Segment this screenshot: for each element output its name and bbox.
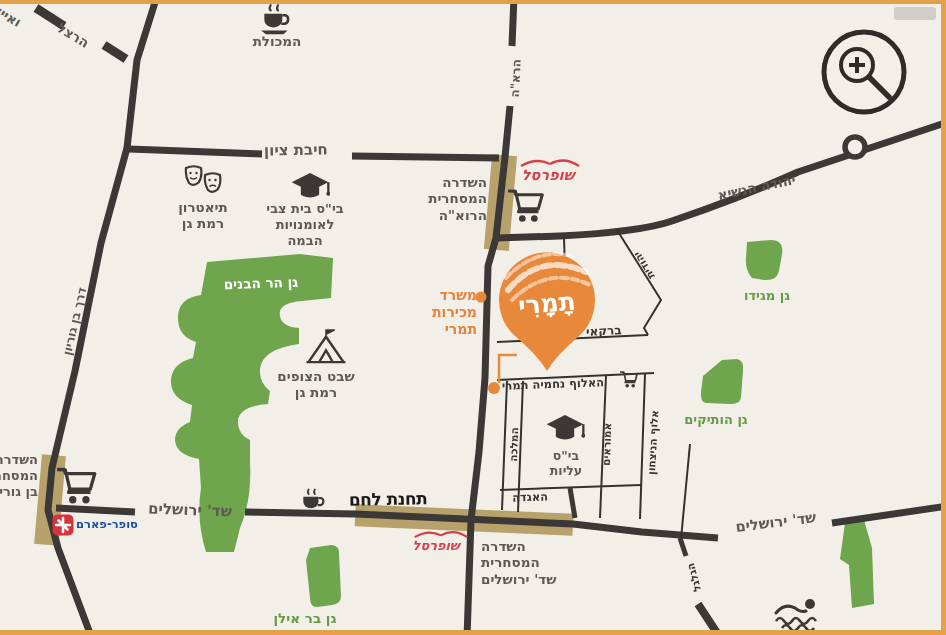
corner-watermark [894,7,936,20]
street-label-haroe: הרא"ה [508,56,525,101]
cart-icon [620,369,640,390]
theater-masks-icon [184,164,224,201]
zoom-in-icon[interactable] [817,25,911,119]
poi-label-sales-office: משרד מכירות תמרי [399,287,477,338]
super-pharm-label: סופר-פארם [75,517,139,531]
poi-label-scouts: שבט הצופים רמת גן [274,368,358,401]
street-hagalgal-upper [681,444,690,539]
road-ben-gurion [48,0,157,635]
poi-label-gan-bar-ilan: גן בר אילן [270,610,340,626]
street-label-hibat-zion: חיבת ציון [264,140,328,159]
street-label-haagada: האגדה [512,489,549,504]
tahanat-lehem-logo: תחנת לחם [336,488,440,511]
graduation-cap-icon [545,413,585,447]
road-hagalgal-stub [680,538,686,556]
shufersal-logo-bottom: שופרסל [402,529,470,552]
shufersal-logo-bottom-text: שופרסל [402,539,470,552]
park-gan-havatikim [701,359,743,404]
poi-label-beit-zvi: בי"ס בית צבי לאומנויות הבמה [260,201,350,249]
park-gan-megido [746,240,782,280]
road-herzl-dash-2 [104,45,126,59]
poi-label-school-aliyot: בי"ס עליות [534,448,598,479]
poi-label-theater: תיאטרון רמת גן [160,199,246,232]
sales-office-dot [476,292,487,303]
swimmer-icon [772,596,832,632]
coffee-cup-icon [298,487,330,517]
poi-label-promenade-jerusalem: השדרה המסחרית שד' ירושלים [481,538,573,587]
park-east-strip [840,520,874,608]
zoom-in-button[interactable] [817,25,911,119]
cart-icon [508,185,548,227]
street-label-hamalka: המלכה [507,423,521,465]
tamari-location-map: ואיילון הרצל חיבת ציון הרא"ה יהודה הנשיא… [0,0,946,635]
shufersal-logo-top-text: שופרסל [515,168,581,183]
poi-label-promenade-ben-gurion: השדרה המסחרית בן גוריון [0,452,38,500]
park-gan-bar-ilan [306,545,341,607]
street-label-amoraim: אמוראים [600,418,615,470]
poi-label-promenade-haroe: השדרה המסחרית הרוא"ה [407,174,487,223]
poi-label-gan-havatikim: גן הותיקים [672,412,760,428]
cart-icon [57,464,101,508]
coffee-cup-icon [258,3,296,37]
roundabout-icon [845,137,865,157]
street-label-barkai: ברקאי [586,323,622,339]
tent-icon [304,327,348,366]
street-label-jerusalem-left: שד' ירושלים [141,499,240,521]
shufersal-logo-top: שופרסל [515,157,581,183]
super-pharm-icon [52,514,74,536]
graduation-cap-icon [290,170,330,206]
frame-border-top [0,0,946,4]
frame-border-right [941,0,946,635]
road-stub-south [570,488,575,518]
poi-label-gan-megido: גן מגידו [737,288,797,304]
frame-border-bottom [0,630,946,635]
street-nitzachon-line [640,374,645,519]
